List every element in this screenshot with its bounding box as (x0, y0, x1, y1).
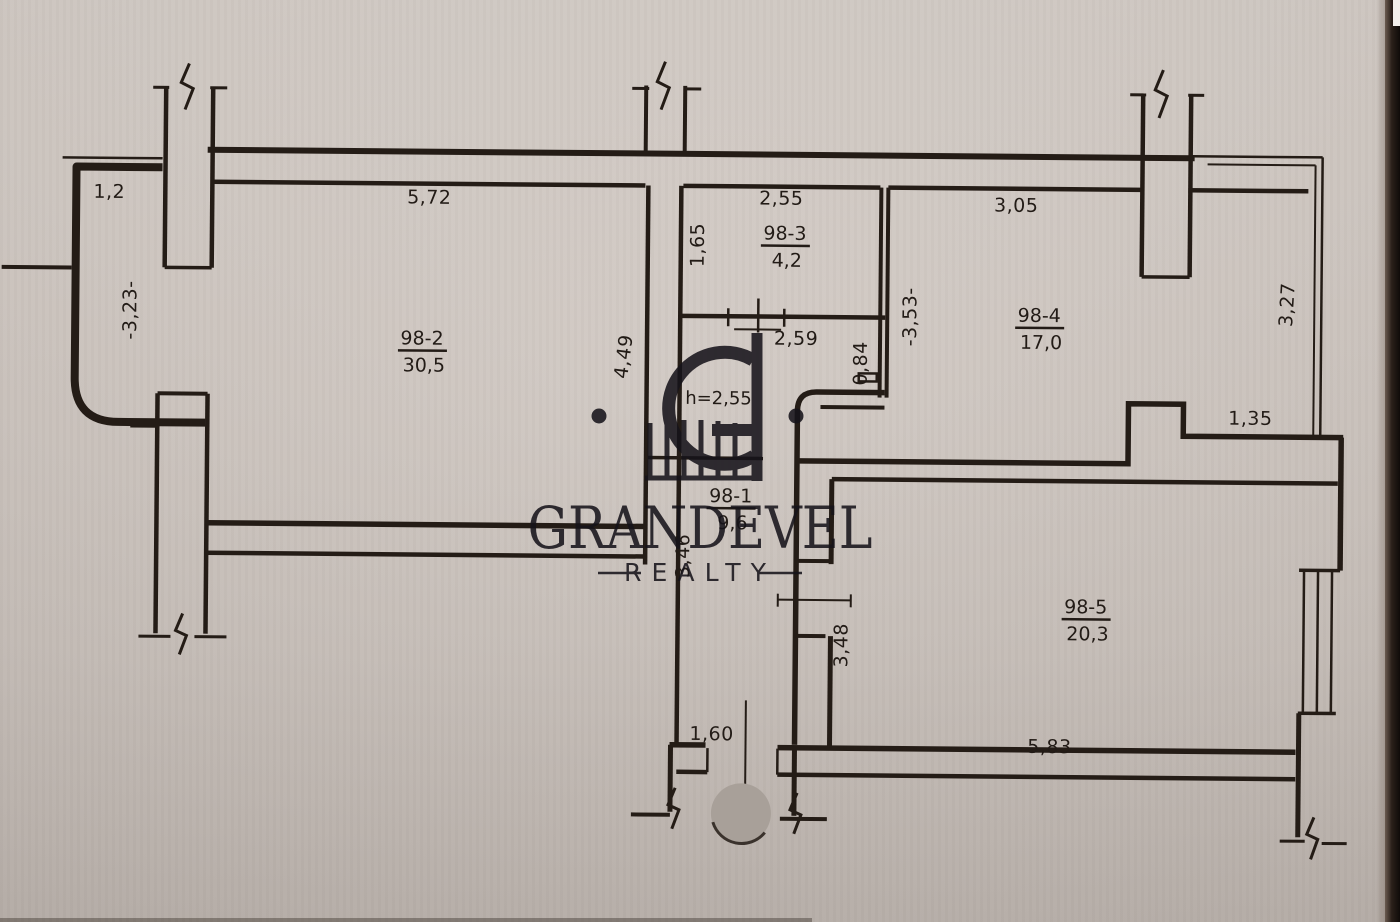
room-label-98-2: 98-2 30,5 (400, 327, 445, 376)
scan-dark-edge (1385, 0, 1400, 922)
room-area: 4,2 (772, 250, 802, 272)
dim-room4-notch: 1,35 (1228, 408, 1273, 430)
room-area: 30,5 (403, 354, 446, 376)
dim-balcony-right-depth: 3,27 (1275, 282, 1300, 328)
ceiling-height-note: h=2,55 (685, 388, 752, 410)
floor-plan-scan: 1,2 5,72 2,55 3,05 1,65 -3,23- 4,49 2,59… (0, 0, 1400, 922)
room-id: 98-5 (1064, 596, 1107, 618)
scan-bottom-edge (0, 918, 812, 922)
dim-balcony-left-depth: -3,23- (119, 280, 142, 339)
scan-corner-notch (1393, 0, 1400, 26)
plan-labels: 1,2 5,72 2,55 3,05 1,65 -3,23- 4,49 2,59… (89, 181, 1301, 761)
dim-entry-width: 1,60 (689, 723, 734, 745)
dim-room4-width: 3,05 (994, 195, 1039, 217)
room-id: 98-2 (400, 327, 443, 349)
dim-room5-width: 5,83 (1027, 736, 1072, 758)
dim-room4-depth: -3,53- (899, 287, 922, 346)
watermark-brand-text: GRANDEVEL (528, 494, 873, 562)
dim-room5-left: 3,48 (830, 623, 852, 668)
walls (0, 80, 1346, 838)
dim-corridor-depth: 4,49 (610, 333, 638, 380)
room-id: 98-3 (763, 223, 806, 245)
floor-plan-drawing: 1,2 5,72 2,55 3,05 1,65 -3,23- 4,49 2,59… (0, 0, 1400, 922)
watermark-dot-right (789, 409, 804, 424)
room-area: 20,3 (1066, 623, 1109, 645)
watermark-dot-left (592, 409, 607, 424)
room-id: 98-4 (1018, 305, 1061, 327)
dim-room2-width: 5,72 (407, 186, 452, 208)
dim-room3-height: 1,65 (687, 223, 709, 268)
room-label-98-5: 98-5 20,3 (1064, 596, 1109, 645)
dim-bath-width: 2,59 (774, 328, 819, 350)
room-label-98-3: 98-3 4,2 (763, 223, 807, 272)
room-area: 17,0 (1020, 332, 1063, 354)
dim-balcony-left-width: 1,2 (93, 181, 125, 203)
dim-room3-width: 2,55 (759, 188, 804, 210)
room-label-98-4: 98-4 17,0 (1017, 305, 1062, 354)
dim-bath-depth: 0,84 (850, 341, 872, 386)
watermark-tagline-text: REALTY (624, 558, 776, 587)
